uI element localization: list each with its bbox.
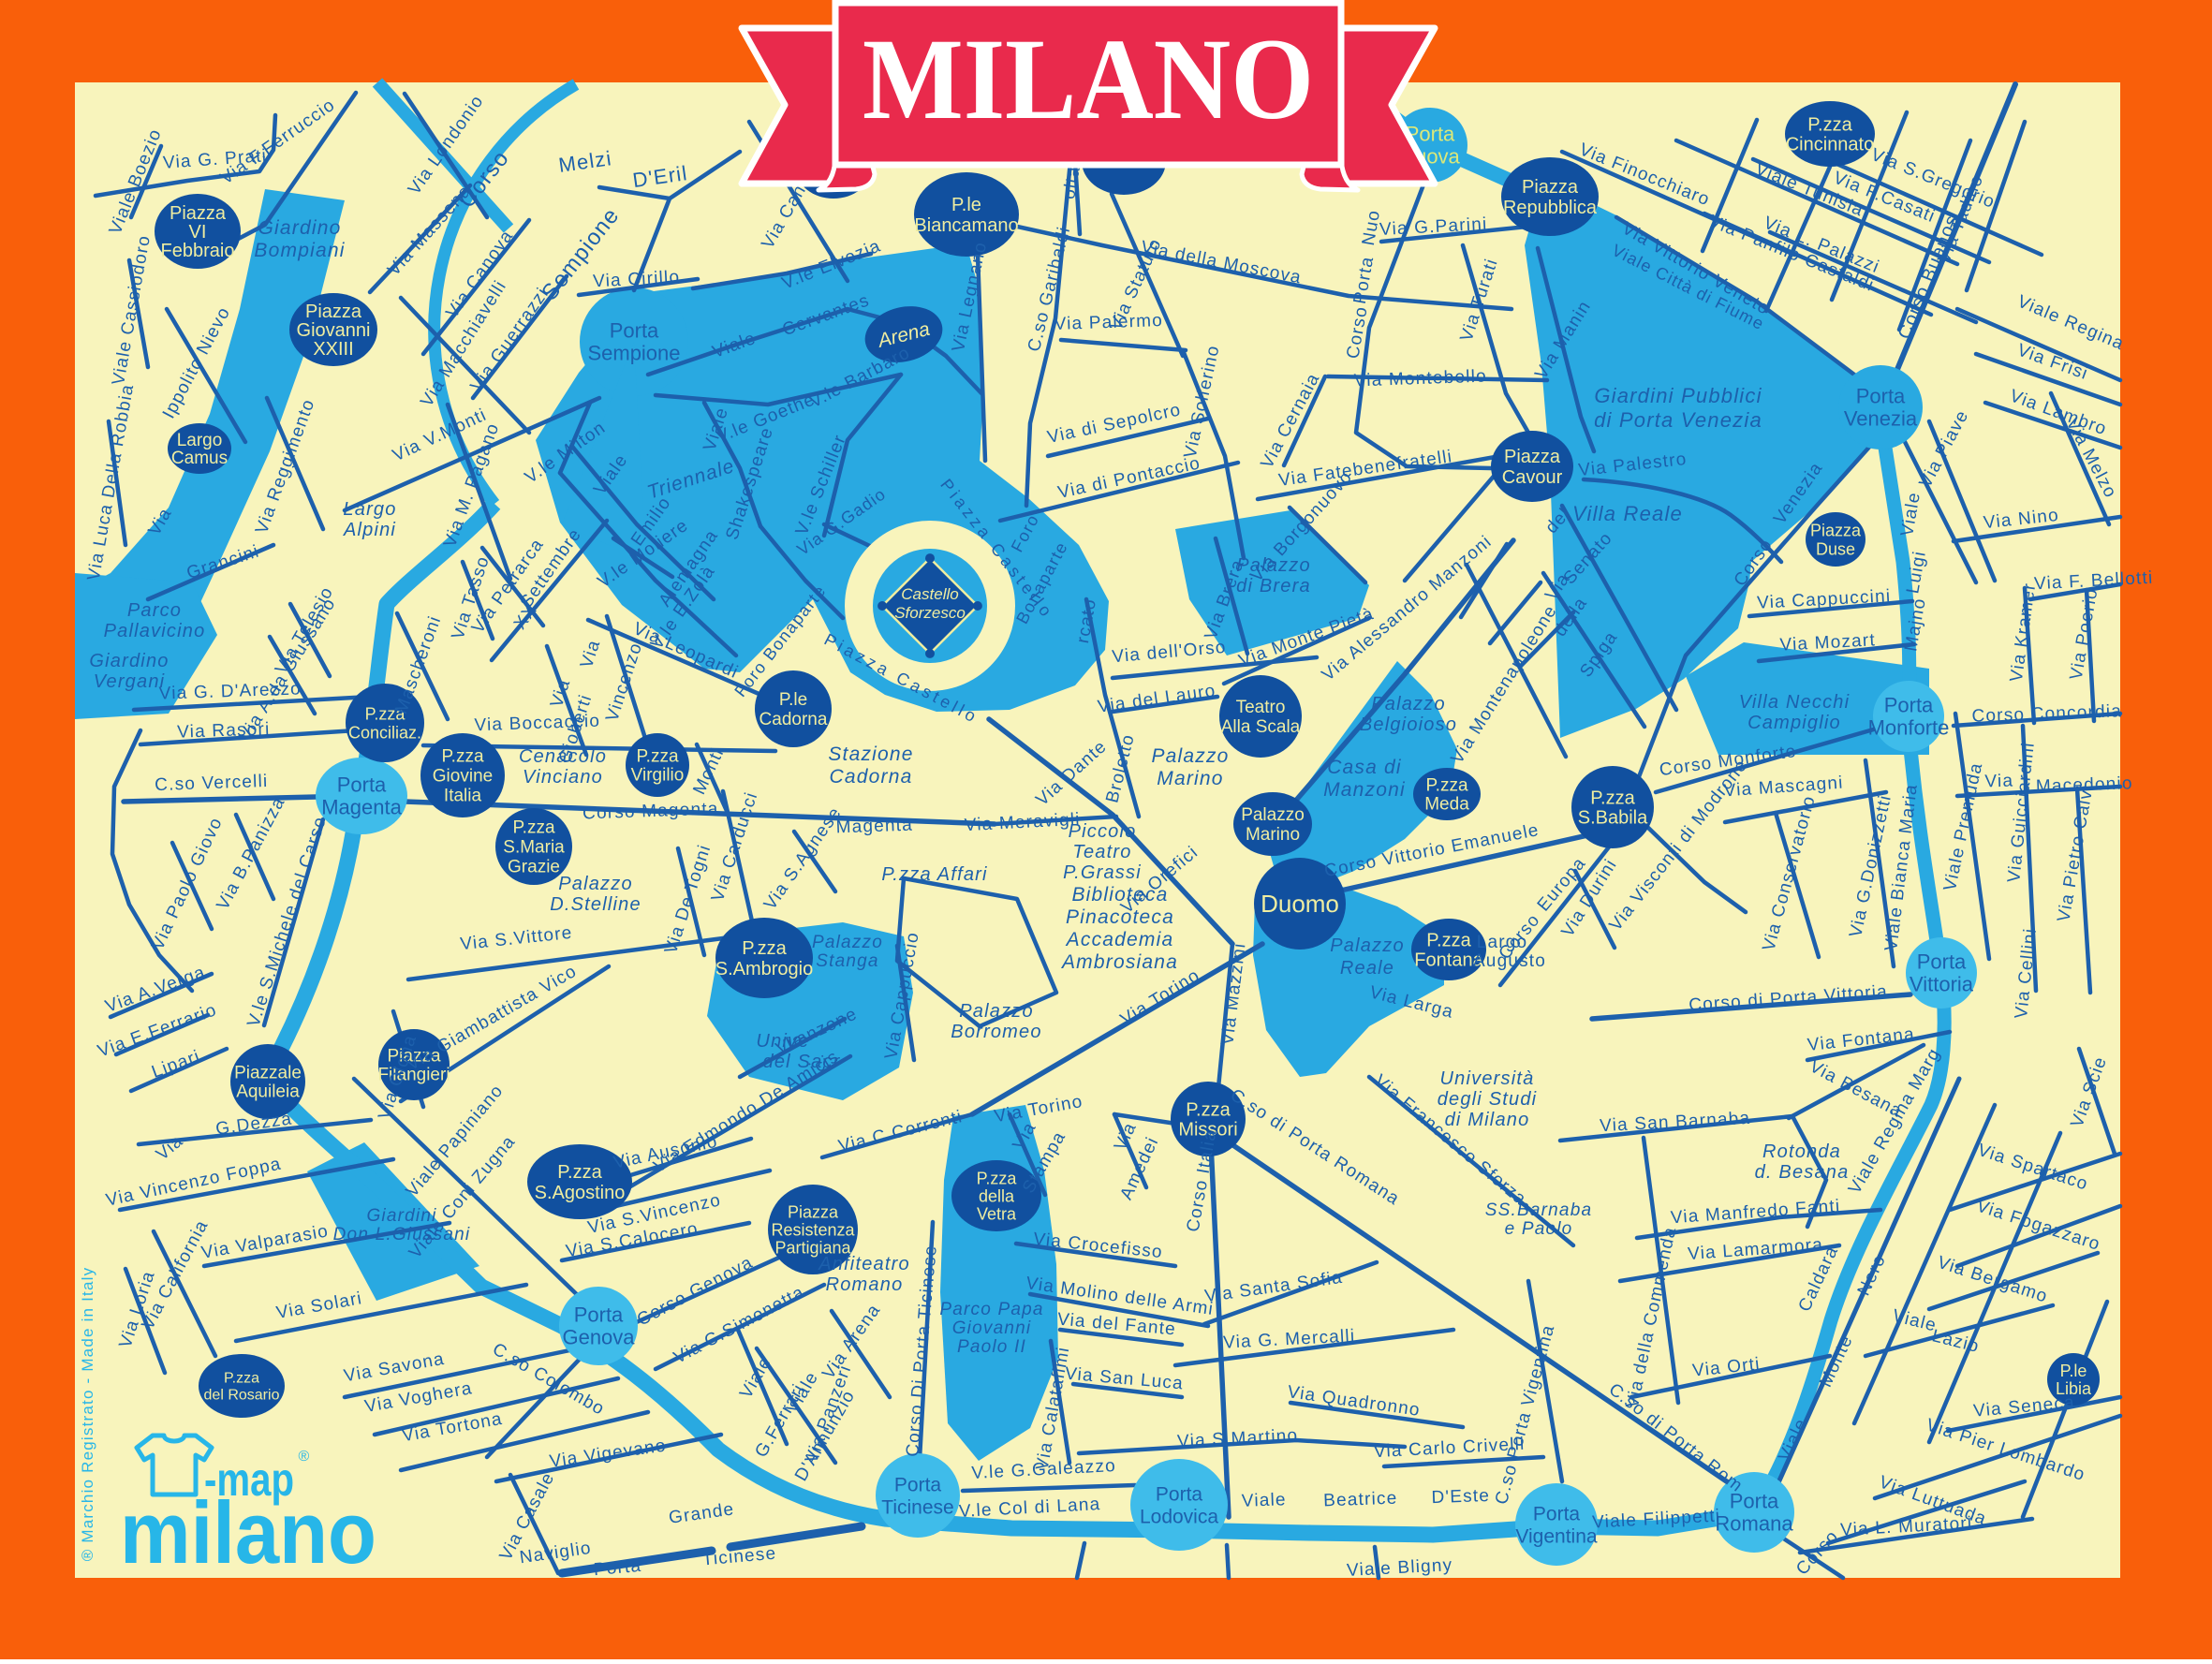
svg-text:Porta: Porta bbox=[593, 1556, 642, 1580]
svg-text:milano: milano bbox=[120, 1483, 376, 1582]
svg-text:Giardini: Giardini bbox=[366, 1206, 436, 1226]
svg-text:P.zza: P.zza bbox=[977, 1169, 1018, 1187]
svg-text:Vetra: Vetra bbox=[977, 1204, 1017, 1223]
svg-text:Rotonda: Rotonda bbox=[1762, 1141, 1841, 1162]
svg-text:Parco Papa: Parco Papa bbox=[939, 1300, 1043, 1319]
svg-text:P.zza: P.zza bbox=[441, 747, 484, 767]
svg-text:Giovanni: Giovanni bbox=[297, 320, 371, 341]
svg-text:Accademia: Accademia bbox=[1065, 929, 1174, 950]
svg-text:Giardino: Giardino bbox=[89, 651, 169, 671]
svg-text:P.zza: P.zza bbox=[1186, 1100, 1231, 1121]
svg-text:S.Agostino: S.Agostino bbox=[535, 1183, 626, 1203]
svg-text:d. Besana: d. Besana bbox=[1755, 1162, 1850, 1183]
svg-text:di Milano: di Milano bbox=[1445, 1110, 1530, 1130]
svg-text:Paolo II: Paolo II bbox=[957, 1337, 1026, 1357]
svg-text:Vergani: Vergani bbox=[94, 671, 166, 692]
svg-text:Largo: Largo bbox=[1477, 933, 1528, 952]
svg-text:Aquileia: Aquileia bbox=[236, 1082, 300, 1102]
svg-text:S.Babila: S.Babila bbox=[1578, 808, 1648, 829]
svg-text:Vittoria: Vittoria bbox=[1910, 973, 1974, 996]
svg-text:della: della bbox=[979, 1186, 1015, 1205]
svg-text:Monforte: Monforte bbox=[1868, 716, 1950, 740]
svg-text:Palazzo: Palazzo bbox=[558, 874, 633, 894]
svg-text:Piazzale: Piazzale bbox=[234, 1064, 302, 1083]
svg-text:del Rosario: del Rosario bbox=[204, 1388, 280, 1404]
svg-text:Palazzo: Palazzo bbox=[1236, 555, 1311, 576]
svg-text:D'Este: D'Este bbox=[1431, 1486, 1490, 1508]
svg-text:P.zza: P.zza bbox=[557, 1162, 602, 1183]
svg-text:Genova: Genova bbox=[562, 1326, 635, 1349]
svg-text:P.zza: P.zza bbox=[1426, 931, 1471, 951]
svg-text:Piazza: Piazza bbox=[170, 203, 227, 224]
svg-text:Porta: Porta bbox=[1884, 694, 1934, 717]
svg-text:Porta: Porta bbox=[574, 1303, 624, 1327]
svg-text:Don L.Giussani: Don L.Giussani bbox=[333, 1225, 471, 1244]
svg-text:S.Ambrogio: S.Ambrogio bbox=[715, 959, 814, 979]
svg-text:Biblioteca: Biblioteca bbox=[1071, 884, 1168, 906]
svg-text:Piccolo: Piccolo bbox=[1069, 821, 1137, 842]
svg-text:Pallavicino: Pallavicino bbox=[104, 621, 206, 641]
svg-text:XXIII: XXIII bbox=[313, 339, 353, 360]
svg-text:Lodovica: Lodovica bbox=[1140, 1506, 1218, 1527]
svg-text:Meda: Meda bbox=[1424, 795, 1469, 815]
svg-text:Teatro: Teatro bbox=[1072, 842, 1131, 862]
svg-text:Ticinese: Ticinese bbox=[881, 1496, 953, 1518]
svg-text:Castello: Castello bbox=[901, 585, 958, 603]
svg-text:Grazie: Grazie bbox=[508, 858, 560, 877]
svg-text:Alpini: Alpini bbox=[343, 520, 396, 540]
svg-text:P.Grassi: P.Grassi bbox=[1063, 862, 1142, 883]
svg-text:Teatro: Teatro bbox=[1236, 698, 1286, 717]
svg-text:P.zza: P.zza bbox=[512, 818, 555, 838]
svg-text:Virgilio: Virgilio bbox=[631, 766, 685, 786]
svg-text:P.zza: P.zza bbox=[1590, 788, 1635, 809]
svg-text:Venezia: Venezia bbox=[1844, 407, 1918, 431]
svg-text:P.le: P.le bbox=[2060, 1362, 2087, 1380]
svg-text:SS.Barnaba: SS.Barnaba bbox=[1485, 1200, 1592, 1220]
svg-text:degli Studi: degli Studi bbox=[1438, 1089, 1538, 1110]
svg-text:Vinciano: Vinciano bbox=[523, 767, 603, 788]
svg-text:Cenacolo: Cenacolo bbox=[519, 746, 607, 767]
svg-text:Porta: Porta bbox=[1917, 950, 1967, 974]
svg-text:Porta: Porta bbox=[610, 319, 659, 343]
svg-text:di Brera: di Brera bbox=[1236, 576, 1311, 596]
svg-text:P.zza: P.zza bbox=[1807, 115, 1852, 136]
svg-text:Università: Università bbox=[1440, 1068, 1535, 1089]
svg-text:Porta: Porta bbox=[1533, 1503, 1581, 1524]
svg-text:Palazzo: Palazzo bbox=[812, 933, 883, 952]
svg-text:Porta: Porta bbox=[1856, 385, 1906, 408]
svg-text:Manzoni: Manzoni bbox=[1323, 779, 1406, 801]
svg-text:Giovine: Giovine bbox=[433, 767, 493, 787]
svg-text:Piazza: Piazza bbox=[788, 1202, 839, 1221]
svg-text:Resistenza: Resistenza bbox=[771, 1220, 855, 1239]
svg-text:Unive: Unive bbox=[756, 1031, 809, 1052]
svg-text:P.zza: P.zza bbox=[636, 747, 679, 767]
svg-text:Porta: Porta bbox=[1156, 1483, 1203, 1505]
svg-text:S.Maria: S.Maria bbox=[503, 838, 565, 858]
svg-text:Reale: Reale bbox=[1340, 958, 1394, 979]
svg-text:Giovanni: Giovanni bbox=[952, 1318, 1032, 1338]
svg-text:Conciliaz.: Conciliaz. bbox=[348, 723, 421, 742]
svg-text:del Sacr: del Sacr bbox=[763, 1052, 841, 1072]
svg-text:Villa Reale: Villa Reale bbox=[1572, 502, 1683, 525]
svg-text:P.le: P.le bbox=[779, 690, 807, 710]
svg-text:Cincinnato: Cincinnato bbox=[1786, 135, 1875, 155]
svg-text:Duse: Duse bbox=[1816, 539, 1855, 558]
svg-text:Belgioioso: Belgioioso bbox=[1360, 714, 1457, 735]
svg-text:C.so Vercelli: C.so Vercelli bbox=[155, 772, 269, 795]
svg-text:Marino: Marino bbox=[1246, 825, 1300, 845]
svg-text:D.Stelline: D.Stelline bbox=[550, 894, 641, 915]
svg-text:Ambrosiana: Ambrosiana bbox=[1060, 951, 1178, 973]
svg-text:Palazzo: Palazzo bbox=[1330, 935, 1405, 956]
svg-text:Giardino: Giardino bbox=[258, 217, 342, 239]
svg-text:Palazzo: Palazzo bbox=[1241, 805, 1305, 825]
svg-text:Piazza: Piazza bbox=[1504, 447, 1561, 467]
svg-text:®: ® bbox=[299, 1449, 311, 1465]
svg-text:P.zza Affari: P.zza Affari bbox=[881, 864, 987, 885]
svg-text:Magenta: Magenta bbox=[835, 816, 913, 838]
svg-text:Beatrice: Beatrice bbox=[1323, 1489, 1398, 1511]
svg-text:Palazzo: Palazzo bbox=[1151, 745, 1229, 767]
svg-text:Sempione: Sempione bbox=[587, 342, 680, 365]
svg-text:Parco: Parco bbox=[127, 600, 182, 621]
svg-text:Duomo: Duomo bbox=[1261, 890, 1339, 918]
svg-text:Casa di: Casa di bbox=[1327, 757, 1402, 778]
svg-text:Via Palermo: Via Palermo bbox=[1054, 311, 1163, 334]
svg-text:Palazzo: Palazzo bbox=[1371, 694, 1446, 714]
svg-text:Piazza: Piazza bbox=[1522, 177, 1579, 198]
svg-text:Largo: Largo bbox=[177, 431, 223, 450]
svg-text:Vigentina: Vigentina bbox=[1515, 1525, 1598, 1547]
svg-text:Magenta: Magenta bbox=[321, 796, 402, 819]
svg-text:Cavour: Cavour bbox=[1502, 467, 1563, 488]
svg-text:Cadorna: Cadorna bbox=[759, 710, 828, 729]
svg-text:P.zza: P.zza bbox=[1425, 776, 1468, 796]
svg-text:P.zza: P.zza bbox=[742, 938, 787, 959]
svg-text:e Paolo: e Paolo bbox=[1505, 1219, 1573, 1239]
svg-text:Camus: Camus bbox=[171, 449, 228, 468]
svg-text:MILANO: MILANO bbox=[863, 15, 1314, 143]
svg-text:Stanga: Stanga bbox=[816, 951, 878, 971]
svg-text:Stazione: Stazione bbox=[828, 744, 913, 765]
svg-text:P.le: P.le bbox=[951, 195, 981, 215]
svg-text:Largo: Largo bbox=[343, 499, 396, 520]
svg-text:Alla Scala: Alla Scala bbox=[1221, 717, 1301, 737]
svg-text:Repubblica: Repubblica bbox=[1503, 198, 1598, 218]
svg-text:Villa Necchi: Villa Necchi bbox=[1739, 692, 1851, 713]
svg-text:Cadorna: Cadorna bbox=[830, 766, 913, 788]
svg-text:Italia: Italia bbox=[444, 787, 482, 806]
svg-text:Piazza: Piazza bbox=[1810, 521, 1862, 539]
svg-text:Biancamano: Biancamano bbox=[914, 215, 1018, 236]
svg-text:Febbraio: Febbraio bbox=[161, 241, 235, 261]
svg-text:VI: VI bbox=[189, 222, 207, 243]
svg-text:Viale: Viale bbox=[1242, 1490, 1288, 1511]
svg-text:Romana: Romana bbox=[1715, 1512, 1793, 1536]
svg-text:Piazza: Piazza bbox=[305, 302, 362, 322]
svg-text:P.zza: P.zza bbox=[224, 1371, 259, 1387]
svg-text:Romano: Romano bbox=[826, 1274, 904, 1295]
svg-text:® Marchio Registrato - Made in: ® Marchio Registrato - Made in Italy bbox=[79, 1267, 96, 1562]
svg-text:Pinacoteca: Pinacoteca bbox=[1066, 906, 1174, 928]
svg-text:Bompiani: Bompiani bbox=[254, 240, 345, 261]
svg-text:Borromeo: Borromeo bbox=[951, 1022, 1041, 1042]
svg-text:Augusto: Augusto bbox=[1473, 951, 1546, 971]
svg-text:Porta: Porta bbox=[337, 773, 387, 797]
svg-text:Via: Via bbox=[1984, 771, 2013, 791]
svg-text:Anfiteatro: Anfiteatro bbox=[818, 1254, 910, 1274]
svg-text:Giardini Pubblici: Giardini Pubblici bbox=[1594, 384, 1762, 407]
svg-text:Sforzesco: Sforzesco bbox=[894, 604, 966, 622]
svg-text:Campiglio: Campiglio bbox=[1747, 713, 1841, 733]
svg-text:Marino: Marino bbox=[1157, 768, 1223, 789]
svg-text:Palazzo: Palazzo bbox=[959, 1001, 1034, 1022]
svg-text:Porta: Porta bbox=[894, 1474, 942, 1495]
svg-text:di Porta Venezia: di Porta Venezia bbox=[1594, 408, 1762, 432]
